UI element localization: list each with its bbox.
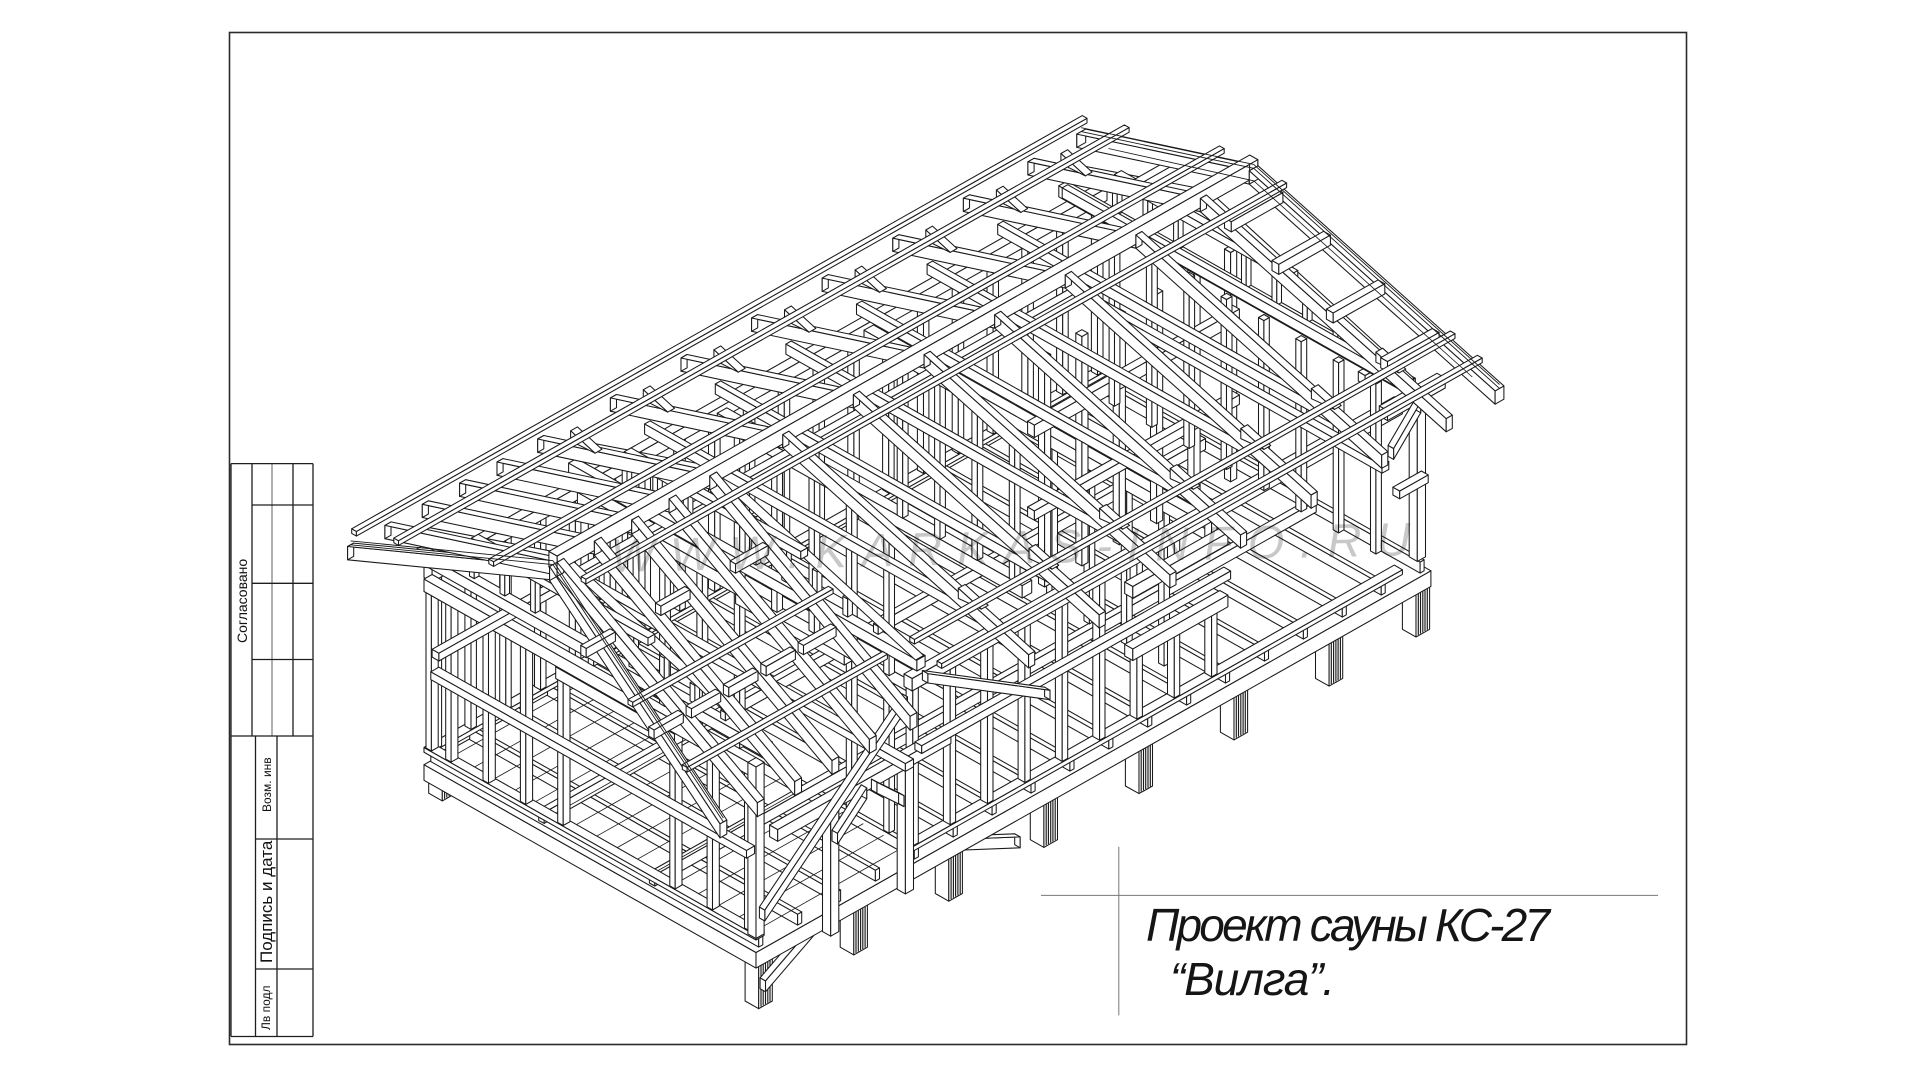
svg-text:Проект сауны КС-27: Проект сауны КС-27 (1146, 899, 1551, 951)
svg-text:Подпись и дата: Подпись и дата (257, 840, 276, 963)
svg-text:Возм. инв: Возм. инв (260, 757, 274, 812)
svg-text:Лв подл: Лв подл (259, 986, 273, 1031)
svg-text:“Вилга”.: “Вилга”. (1170, 953, 1335, 1005)
svg-text:Согласовано: Согласовано (234, 559, 250, 643)
